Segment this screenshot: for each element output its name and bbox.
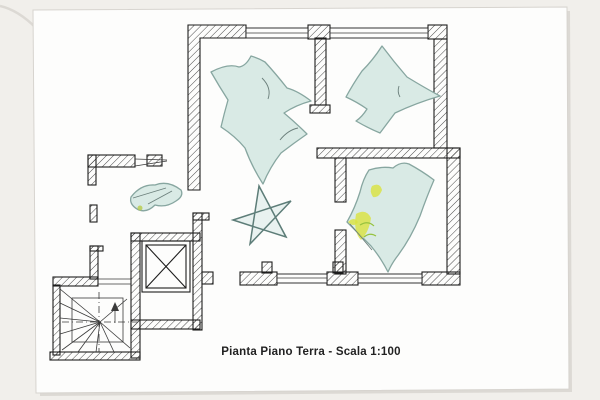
wall-segment <box>327 272 358 285</box>
wall-segment <box>53 285 60 355</box>
wall-segment <box>240 272 277 285</box>
wall-segment <box>315 38 326 105</box>
wall-segment <box>193 213 202 330</box>
wall-segment <box>428 25 447 39</box>
green-spot <box>138 206 143 211</box>
wall-stub <box>90 205 97 222</box>
scanned-floor-plan-photo: Pianta Piano Terra - Scala 1:100 <box>0 0 600 400</box>
wall-segment <box>131 320 200 329</box>
wall-stub <box>333 262 343 273</box>
wall-segment <box>335 158 346 202</box>
wall-segment <box>131 233 140 358</box>
photo-artifact <box>0 6 36 28</box>
wall-segment <box>308 25 330 39</box>
wall-pier <box>147 155 162 166</box>
paper-sheet <box>33 7 572 396</box>
paper <box>33 7 569 393</box>
drawing-caption: Pianta Piano Terra - Scala 1:100 <box>221 346 400 358</box>
wall-segment <box>90 246 98 279</box>
wall-segment <box>317 148 460 158</box>
wall-segment <box>131 233 200 241</box>
wall-segment <box>422 272 460 285</box>
wall-segment <box>50 352 140 360</box>
door-jamb <box>202 272 213 284</box>
wall-segment <box>447 148 460 274</box>
window <box>277 274 327 283</box>
window <box>358 274 422 283</box>
door-jamb <box>310 105 330 113</box>
wall-stub <box>262 262 272 273</box>
wall-stub <box>88 155 96 185</box>
